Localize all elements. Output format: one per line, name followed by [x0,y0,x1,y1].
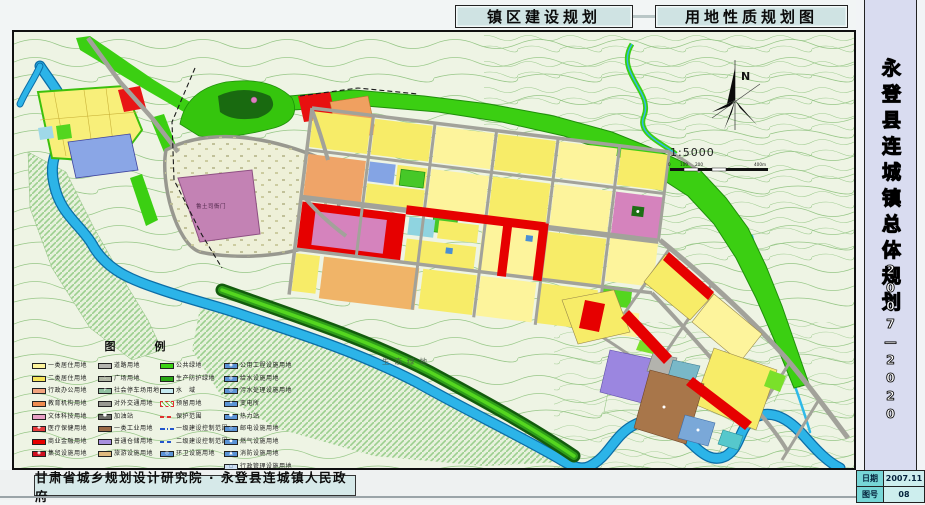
legend-swatch [98,363,112,369]
legend-symbol-icon: P [104,389,107,394]
legend-columns: 一类居住用地二类居住用地行政办公用地教育机构用地文体科技用地✚医疗保健用地商业金… [32,360,294,473]
legend-item-label: 环卫设施用地 [176,451,215,457]
legend-swatch [98,439,112,445]
legend-item: ✚医疗保健用地 [32,423,98,436]
legend-item: 二级建设控制范围 [160,436,224,449]
legend-item-label: 生产防护绿地 [176,376,215,382]
legend-column: 公共绿地生产防护绿地水 域预留用地保护范围一级建设控制范围二级建设控制范围◎环卫… [160,360,224,473]
legend-item: 道路用地 [98,360,160,373]
title-right-text: 用地性质规划图 [685,6,818,27]
legend-swatch [32,363,46,369]
legend-item-label: 给水设施用地 [240,376,279,382]
legend-item: ●加油站 [98,410,160,423]
legend-swatch: ◎ [160,451,174,457]
info-table: 日期 2007.11 图号 08 [856,470,925,503]
legend-swatch: P [98,388,112,394]
legend-swatch [160,441,174,443]
legend-item: ◆燃气设施用地 [224,436,294,449]
legend-symbol-icon: ✦ [229,402,233,407]
legend-swatch [160,388,174,394]
legend-item: ◇邮电设施用地 [224,423,294,436]
legend-swatch: ◉ [224,363,238,369]
sheet-label: 图号 [857,487,884,503]
legend-item-label: 污水处理设施用地 [240,388,292,394]
legend-item-label: 水 域 [176,388,196,394]
legend-swatch [98,401,112,407]
legend-item: 保护范围 [160,410,224,423]
legend-symbol-icon: ✚ [37,427,41,432]
legend-item: 商业金融用地 [32,436,98,449]
pavilion-dot [251,97,257,103]
legend-item: 水 域 [160,385,224,398]
legend-item-label: 公共绿地 [176,363,202,369]
bottom-divider [0,496,925,498]
legend-swatch: ● [98,414,112,420]
legend-item: 预留用地 [160,398,224,411]
legend-swatch: ◉ [32,451,46,457]
legend-item: 二类居住用地 [32,373,98,386]
info-row-date: 日期 2007.11 [857,471,925,487]
legend-item-label: 文体科技用地 [48,414,87,420]
title-box-right: 用地性质规划图 [655,5,848,28]
forest-dense [218,90,273,119]
sheet-value: 08 [884,487,925,503]
legend-symbol-icon: ◍ [229,377,233,382]
legend-title: 图 例 [62,338,222,354]
legend-item-label: 旅游设施用地 [114,451,153,457]
legend-item-label: 保护范围 [176,414,202,420]
legend-column: ◉公用工程设施用地◍给水设施用地◎污水处理设施用地✦变电所●热力站◇邮电设施用地… [224,360,294,473]
legend-item: 对外交通用地 [98,398,160,411]
legend-swatch [160,401,174,407]
legend-item: ∴广场用地 [98,373,160,386]
landmark-label: 鲁土司衙门 [196,202,226,210]
legend-item-label: 预留用地 [176,401,202,407]
scale-tick: 0 [668,162,671,167]
legend-item-label: 变电所 [240,401,260,407]
legend-column: 道路用地∴广场用地P社会停车场用地对外交通用地●加油站一类工业用地普通仓储用地旅… [98,360,160,473]
legend-item: 公共绿地 [160,360,224,373]
legend-item: ◎污水处理设施用地 [224,385,294,398]
scale-tick: 400m [754,162,766,167]
legend-swatch [32,376,46,382]
legend-swatch: ▲ [224,451,238,457]
legend-item: P社会停车场用地 [98,385,160,398]
legend-symbol-icon: ◆ [229,440,232,445]
legend-item-label: 一级建设控制范围 [176,426,228,432]
legend-swatch [32,414,46,420]
legend-swatch: ◇ [224,426,238,432]
legend-symbol-icon: ◎ [229,389,233,394]
title-box-left: 镇区建设规划 [455,5,633,28]
sidebar: 永登县连城镇总体规划 2007—2020 [856,0,925,470]
legend-swatch: ◆ [224,439,238,445]
legend-symbol-icon: ● [229,414,233,419]
legend-item: 普通仓储用地 [98,436,160,449]
legend-item-label: 行政办公用地 [48,388,87,394]
map-frame: 鲁土司衙门 [12,30,856,470]
legend-swatch [32,401,46,407]
legend-swatch: ● [224,414,238,420]
date-label: 日期 [857,471,884,487]
legend-symbol-icon: ◇ [229,427,232,432]
legend-swatch: ◍ [224,376,238,382]
legend-swatch: ∴ [98,376,112,382]
legend-item: ◍给水设施用地 [224,373,294,386]
legend-item-label: 对外交通用地 [114,401,153,407]
legend-swatch [98,426,112,432]
legend-item-label: 二类居住用地 [48,376,87,382]
legend-symbol-icon: ∴ [104,377,107,382]
title-connector-line [633,15,655,18]
legend-item-label: 邮电设施用地 [240,426,279,432]
legend: 图 例 一类居住用地二类居住用地行政办公用地教育机构用地文体科技用地✚医疗保健用… [32,338,294,473]
legend-item-label: 集贸设施用地 [48,451,87,457]
legend-swatch [32,439,46,445]
legend-swatch: ✦ [224,401,238,407]
legend-item-label: 燃气设施用地 [240,439,279,445]
legend-swatch: ◎ [224,388,238,394]
legend-item: 生产防护绿地 [160,373,224,386]
legend-item: ●热力站 [224,410,294,423]
legend-item-label: 加油站 [114,414,134,420]
legend-item: 旅游设施用地 [98,448,160,461]
legend-item: ✦变电所 [224,398,294,411]
eco-greenland-label: 生态绿地 [382,356,432,366]
title-left-text: 镇区建设规划 [487,6,601,27]
plan-period-vertical: 2007—2020 [883,262,898,424]
legend-item-label: 公用工程设施用地 [240,363,292,369]
legend-item: ◎环卫设施用地 [160,448,224,461]
legend-item-label: 普通仓储用地 [114,439,153,445]
sidebar-panel: 永登县连城镇总体规划 2007—2020 [864,0,917,470]
legend-symbol-icon: ▲ [229,452,232,457]
legend-swatch: ✚ [32,426,46,432]
legend-swatch [32,388,46,394]
legend-symbol-icon: ◉ [229,364,233,369]
legend-swatch [160,376,174,382]
legend-item: 行政办公用地 [32,385,98,398]
scale-tick: 200 [695,162,703,167]
legend-symbol-icon: ● [103,414,107,419]
legend-symbol-icon: ◉ [37,452,41,457]
legend-item-label: 医疗保健用地 [48,426,87,432]
date-value: 2007.11 [884,471,925,487]
legend-swatch [160,416,174,418]
legend-item-label: 二级建设控制范围 [176,439,228,445]
info-row-sheet: 图号 08 [857,487,925,503]
legend-item: 一类工业用地 [98,423,160,436]
legend-item: ◉公用工程设施用地 [224,360,294,373]
legend-item-label: 广场用地 [114,376,140,382]
legend-item-label: 一类居住用地 [48,363,87,369]
north-label: N [741,70,750,83]
legend-item: 文体科技用地 [32,410,98,423]
legend-item: 教育机构用地 [32,398,98,411]
legend-item: 一级建设控制范围 [160,423,224,436]
legend-item-label: 热力站 [240,414,260,420]
legend-item-label: 消防设施用地 [240,451,279,457]
legend-swatch [98,451,112,457]
scale-tick: 100 [680,162,688,167]
legend-item-label: 社会停车场用地 [114,388,160,394]
legend-symbol-icon: ◎ [165,452,169,457]
legend-column: 一类居住用地二类居住用地行政办公用地教育机构用地文体科技用地✚医疗保健用地商业金… [32,360,98,473]
credit-text: 甘肃省城乡规划设计研究院 · 永登县连城镇人民政府 [35,467,355,505]
legend-item-label: 教育机构用地 [48,401,87,407]
legend-item-label: 道路用地 [114,363,140,369]
legend-item-label: 一类工业用地 [114,426,153,432]
legend-item-label: 商业金融用地 [48,439,87,445]
legend-item: 一类居住用地 [32,360,98,373]
legend-item: ▲消防设施用地 [224,448,294,461]
legend-swatch [160,363,174,369]
legend-item: ◉集贸设施用地 [32,448,98,461]
credit-box: 甘肃省城乡规划设计研究院 · 永登县连城镇人民政府 [34,475,356,496]
scale-text: 1:5000 [670,146,715,159]
legend-swatch [160,428,174,430]
